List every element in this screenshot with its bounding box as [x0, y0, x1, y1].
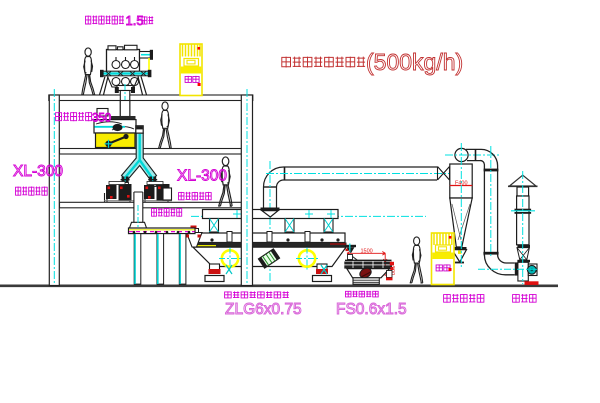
- svg-text:1.5: 1.5: [126, 13, 144, 28]
- svg-text:FS0.6x1.5: FS0.6x1.5: [336, 301, 407, 318]
- svg-text:XL-300: XL-300: [13, 163, 63, 180]
- svg-text:350: 350: [92, 113, 111, 125]
- svg-text:1500: 1500: [361, 249, 373, 255]
- svg-text:(500kg/h): (500kg/h): [366, 49, 463, 75]
- svg-text:XL-300: XL-300: [177, 168, 227, 185]
- svg-text:ZLG6x0.75: ZLG6x0.75: [225, 301, 302, 318]
